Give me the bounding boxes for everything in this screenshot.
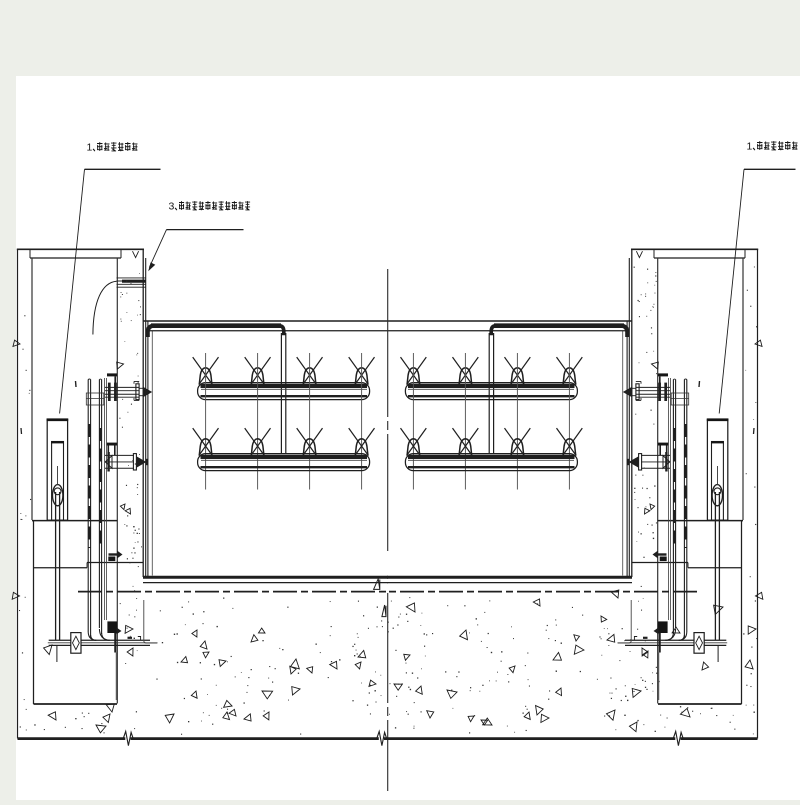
svg-text:1: 1 xyxy=(87,141,93,153)
svg-text:3: 3 xyxy=(169,200,175,212)
svg-text:1: 1 xyxy=(747,140,753,152)
